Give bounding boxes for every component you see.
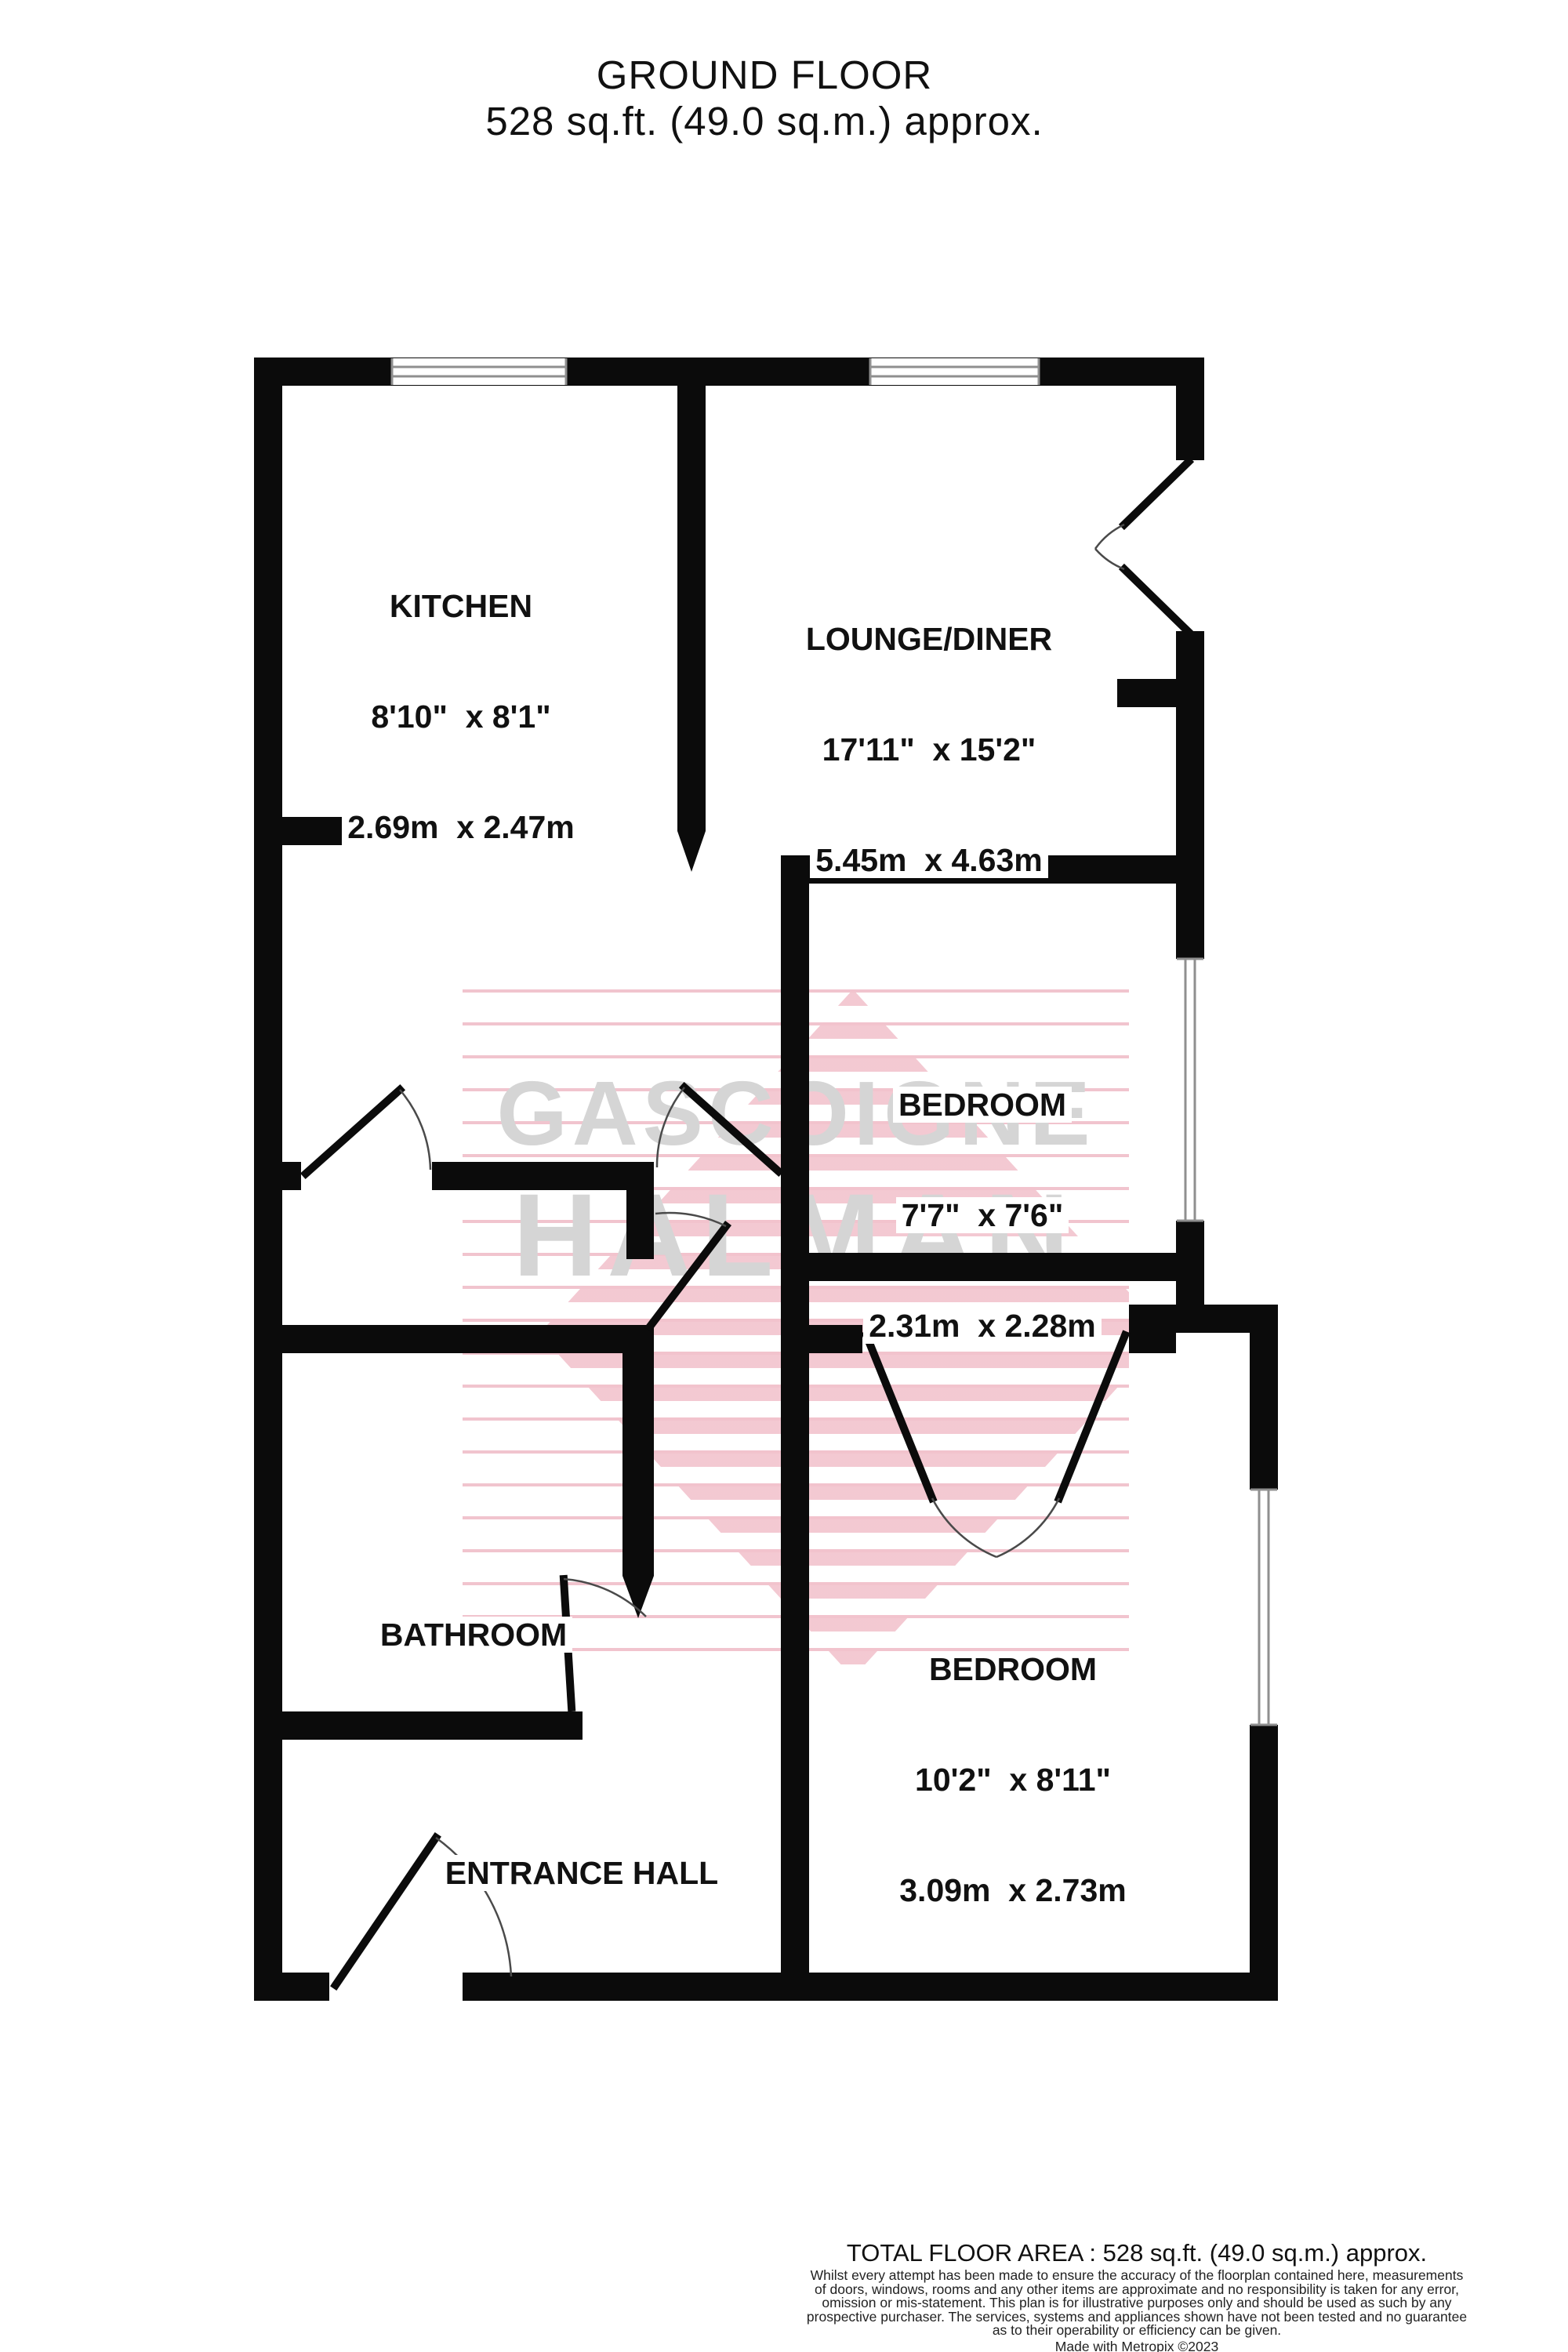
bedroom1-door-leaf bbox=[684, 1087, 779, 1171]
lounge-metric: 5.45m x 4.63m bbox=[810, 842, 1047, 878]
page-title: GROUND FLOOR528 sq.ft. (49.0 sq.m.) appr… bbox=[372, 52, 1156, 144]
wall-corridor-post bbox=[626, 1190, 654, 1259]
wall-lounge-right-lower bbox=[1176, 631, 1204, 884]
wall-divider-tip bbox=[677, 831, 706, 872]
wall-bathroom-top bbox=[254, 1325, 654, 1353]
lounge-imperial: 17'11" x 15'2" bbox=[817, 731, 1042, 768]
label-bedroom1: BEDROOM 7'7" x 7'6" 2.31m x 2.28m bbox=[786, 1013, 1178, 1418]
title-line1: GROUND FLOOR bbox=[597, 53, 933, 97]
bedroom2-imperial: 10'2" x 8'11" bbox=[909, 1762, 1116, 1798]
bedroom1-name: BEDROOM bbox=[893, 1087, 1072, 1123]
wall-lounge-right-upper bbox=[1176, 386, 1204, 460]
bedroom2-door-arc-left bbox=[932, 1498, 996, 1557]
label-lounge: LOUNGE/DINER 17'11" x 15'2" 5.45m x 4.63… bbox=[710, 547, 1149, 953]
wall-cupboard-top-stub bbox=[254, 1162, 301, 1190]
kitchen-name: KITCHEN bbox=[384, 588, 538, 624]
label-kitchen: KITCHEN 8'10" x 8'1" 2.69m x 2.47m bbox=[265, 514, 657, 920]
french-door-arc-top bbox=[1095, 524, 1124, 549]
window-lounge bbox=[870, 358, 1039, 385]
wall-kitchen-lounge-divider bbox=[677, 386, 706, 831]
wall-bedroom1-right-upper bbox=[1176, 884, 1204, 959]
wall-cupboard-top-mid bbox=[432, 1162, 654, 1190]
window-kitchen bbox=[392, 358, 566, 385]
floorplan-drawing bbox=[0, 0, 1568, 2352]
label-entrance-hall: ENTRANCE HALL bbox=[386, 1781, 778, 1965]
bathroom-name: BATHROOM bbox=[375, 1617, 572, 1653]
label-bathroom: BATHROOM bbox=[317, 1543, 630, 1727]
bedroom2-metric: 3.09m x 2.73m bbox=[894, 1872, 1131, 1908]
bedroom2-name: BEDROOM bbox=[924, 1651, 1102, 1687]
wall-bedroom2-right-upper bbox=[1250, 1333, 1278, 1490]
french-door-leaf-top bbox=[1124, 462, 1189, 524]
kitchen-imperial: 8'10" x 8'1" bbox=[365, 699, 556, 735]
lounge-name: LOUNGE/DINER bbox=[800, 621, 1058, 657]
disclaimer-line: Whilst every attempt has been made to en… bbox=[749, 2269, 1525, 2283]
corridor-door-leaf bbox=[650, 1226, 726, 1327]
wall-bottom-left bbox=[254, 1973, 329, 2001]
cupboard-door-leaf bbox=[306, 1090, 400, 1174]
entrance-hall-name: ENTRANCE HALL bbox=[440, 1855, 724, 1891]
label-bedroom2: BEDROOM 10'2" x 8'11" 3.09m x 2.73m bbox=[817, 1577, 1209, 1983]
total-floor-area: TOTAL FLOOR AREA : 528 sq.ft. (49.0 sq.m… bbox=[745, 2239, 1529, 2267]
title-line2: 528 sq.ft. (49.0 sq.m.) approx. bbox=[485, 99, 1043, 143]
bedroom1-door-arc bbox=[657, 1087, 684, 1167]
kitchen-metric: 2.69m x 2.47m bbox=[342, 809, 579, 845]
disclaimer-text: Whilst every attempt has been made to en… bbox=[749, 2269, 1525, 2338]
floorplan-page: GASCOIGNE HALMAN bbox=[0, 0, 1568, 2352]
window-bedroom1 bbox=[1177, 959, 1203, 1221]
bedroom1-imperial: 7'7" x 7'6" bbox=[896, 1197, 1069, 1233]
disclaimer-line: as to their operability or efficiency ca… bbox=[749, 2324, 1525, 2338]
bedroom1-metric: 2.31m x 2.28m bbox=[863, 1308, 1101, 1344]
window-bedroom2 bbox=[1250, 1490, 1277, 1725]
bedroom2-door-arc-right bbox=[996, 1498, 1059, 1557]
cupboard-door-arc bbox=[400, 1090, 430, 1170]
wall-bedroom2-right-lower bbox=[1250, 1725, 1278, 1973]
corridor-door-arc bbox=[655, 1213, 726, 1226]
metropix-credit: Made with Metropix ©2023 bbox=[749, 2339, 1525, 2352]
